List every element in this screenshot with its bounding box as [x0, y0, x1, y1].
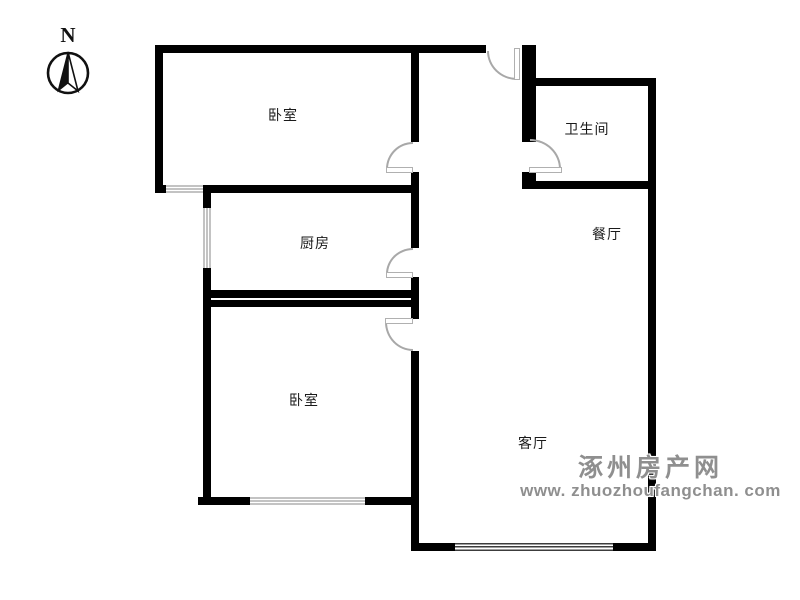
window-kitchen [203, 208, 211, 268]
wall-left-outer-bedroom-top [155, 45, 163, 193]
kitchen-door-leaf [386, 272, 413, 278]
room-label-kitchen: 厨房 [300, 233, 330, 253]
bathroom-door-arc [530, 139, 561, 169]
wall-top-outer [155, 45, 486, 53]
room-label-dining: 餐厅 [592, 224, 622, 244]
watermark-site-url: www. zhuozhoufangchan. com [518, 482, 783, 500]
wall-bathroom-top [522, 78, 656, 86]
bedroom-bottom-door-leaf [385, 318, 413, 324]
wall-bathroom-bottom [522, 181, 656, 189]
window-living-room [455, 543, 613, 551]
window-bedroom-top [166, 185, 203, 193]
bedroom-top-door-arc [386, 142, 413, 169]
room-label-living-room: 客厅 [518, 433, 548, 453]
north-arrow-icon [44, 46, 92, 96]
kitchen-door-arc [386, 248, 413, 274]
wall-central-seg-d [411, 351, 419, 551]
bathroom-door-leaf [529, 167, 562, 173]
room-label-bathroom: 卫生间 [565, 119, 610, 139]
wall-entry-side [522, 45, 536, 142]
wall-central-seg-a [411, 45, 419, 142]
bedroom-top-door-leaf [386, 167, 413, 173]
compass-north-label: N [44, 24, 92, 46]
wall-central-seg-b [411, 172, 419, 248]
wall-bedroom-bottom-top [203, 300, 419, 307]
wall-kitchen-bottom [203, 290, 419, 298]
watermark-site-name: 涿州房产网 [518, 455, 783, 482]
entry-door-arc [487, 51, 517, 80]
room-label-bedroom-top: 卧室 [268, 105, 298, 125]
wall-central-seg-c [411, 277, 419, 319]
floor-plan: N 卧室 卫生间 厨房 餐厅 卧室 客厅 涿州房产网 [0, 0, 800, 600]
wall-bathroom-left-stub [522, 172, 536, 189]
entry-door-leaf [514, 48, 520, 80]
window-bedroom-bottom [250, 497, 365, 505]
room-label-bedroom-bottom: 卧室 [289, 390, 319, 410]
watermark: 涿州房产网 www. zhuozhoufangchan. com [518, 455, 783, 500]
compass: N [44, 24, 92, 101]
bedroom-bottom-door-arc [385, 322, 413, 351]
